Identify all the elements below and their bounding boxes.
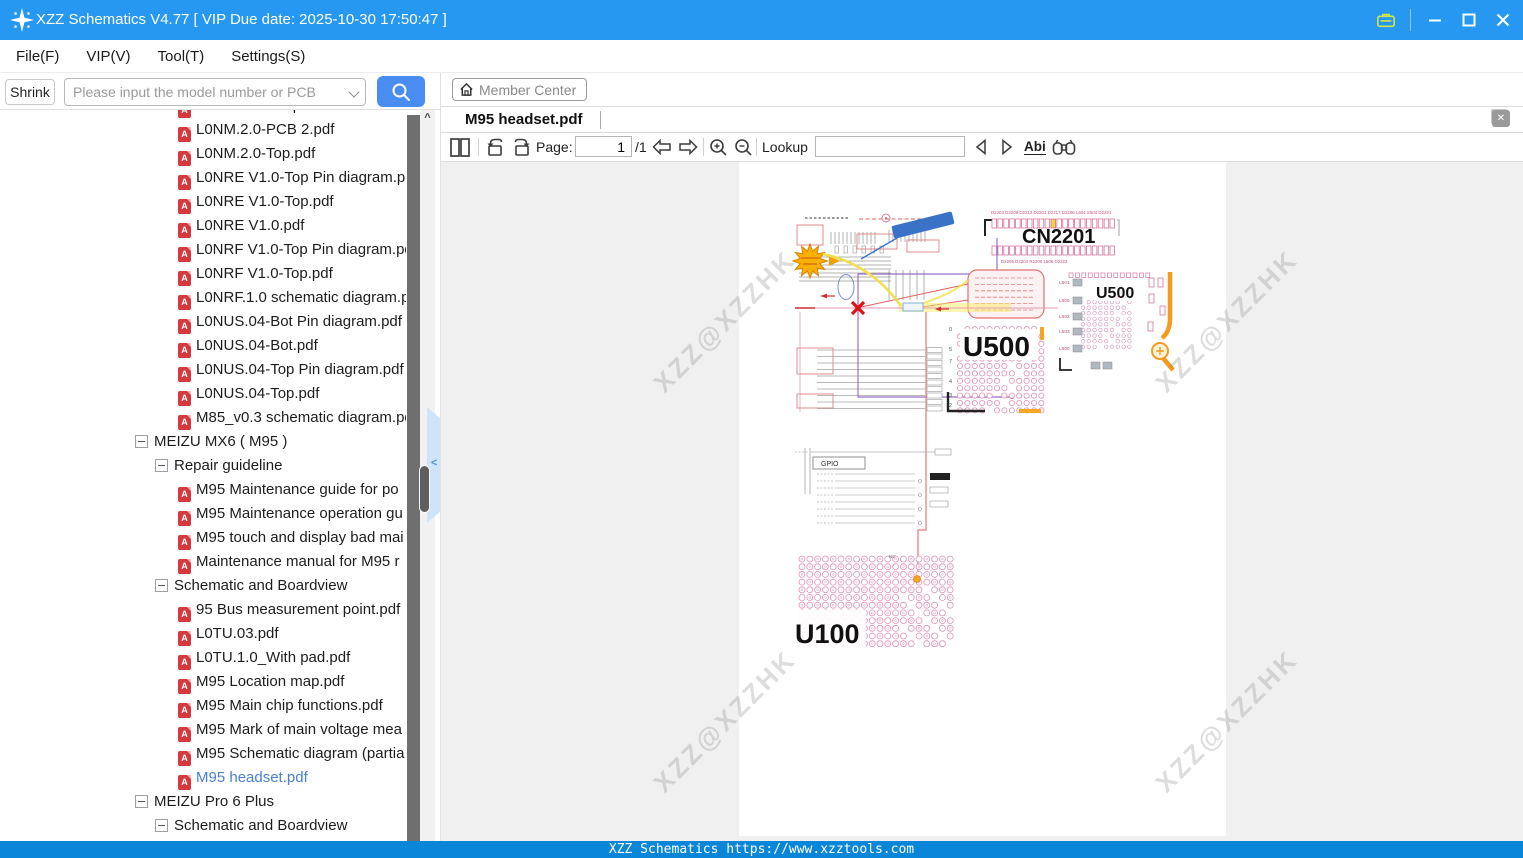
model-search-box <box>64 78 366 106</box>
document-tab[interactable]: M95 headset.pdf <box>465 111 583 128</box>
find-previous-button[interactable] <box>973 136 989 158</box>
lookup-label: Lookup <box>762 136 808 158</box>
page-label: Page: <box>536 136 573 158</box>
svg-text:2: 2 <box>949 403 952 409</box>
pdf-icon: A <box>178 679 191 694</box>
page-count-label: /1 <box>635 136 647 158</box>
menu-item-vip[interactable]: VIP(V) <box>86 48 130 65</box>
tree-item-label: L0NUS.04-Bot Pin diagram.pdf <box>196 313 402 330</box>
pdf-page: D2203 D2209 D2212 D2201 D2217 D2206 L504… <box>739 162 1226 836</box>
search-row: Shrink <box>0 73 440 110</box>
close-button[interactable] <box>1493 10 1513 30</box>
tree-item-label: L0TU.03.pdf <box>196 625 279 642</box>
tree-file[interactable]: AMaintenance manual for M95 r <box>0 550 406 574</box>
pdf-icon: A <box>178 535 191 550</box>
pdf-icon: A <box>178 295 191 310</box>
tree-file[interactable]: AL0TU.1.0_With pad.pdf <box>0 646 406 670</box>
tree-group[interactable]: Schematic and Boardview <box>0 574 406 598</box>
tree-file[interactable]: AL0NRE V1.0-Top.pdf <box>0 190 406 214</box>
schematic-drawing: D2203 D2209 D2212 D2201 D2217 D2206 L504… <box>739 162 1226 836</box>
member-center-label: Member Center <box>479 82 576 98</box>
title-bar: XZZ Schematics V4.77 [ VIP Due date: 202… <box>0 0 1523 40</box>
tree-item-label: L0NRE V1.0-Top Pin diagram.pdf <box>196 169 406 186</box>
home-icon <box>459 82 474 97</box>
tree-file[interactable]: AL0NRF V1.0-Top Pin diagram.pdf <box>0 238 406 262</box>
pdf-icon: A <box>178 751 191 766</box>
model-search-input[interactable] <box>73 80 343 104</box>
search-button[interactable] <box>377 76 425 107</box>
pdf-icon: A <box>178 511 191 526</box>
status-bar-text: XZZ Schematics https://www.xzztools.com <box>609 842 914 857</box>
match-case-button[interactable]: Abi <box>1024 136 1046 158</box>
tree-file[interactable]: AM95 Location map.pdf <box>0 670 406 694</box>
pdf-icon: A <box>178 127 191 142</box>
svg-text:D2203 D2209 D2212 D2201 D2217: D2203 D2209 D2212 D2201 D2217 D2206 L504… <box>991 210 1112 215</box>
tree-item-label: L0NM.2.0-Top.pdf <box>196 145 315 162</box>
svg-text:L500: L500 <box>1059 346 1070 352</box>
tree-item-label: M95 Main chip functions.pdf <box>196 697 383 714</box>
tree-item-label: Maintenance manual for M95 r <box>196 553 399 570</box>
svg-text:7: 7 <box>949 359 952 365</box>
rotate-right-button[interactable] <box>512 136 532 158</box>
tree-file[interactable]: AM95 Schematic diagram (partia <box>0 742 406 766</box>
pdf-icon: A <box>178 391 191 406</box>
tree-item-label: MEIZU Pro 6 Plus <box>154 793 274 810</box>
connector-cn2201: D2203 D2209 D2212 D2201 D2217 D2206 L504… <box>985 210 1119 264</box>
pdf-canvas[interactable]: D2203 D2209 D2212 D2201 D2217 D2206 L504… <box>441 162 1523 841</box>
pdf-icon: A <box>178 223 191 238</box>
binoculars-icon[interactable] <box>1052 136 1076 158</box>
app-window: XZZ Schematics V4.77 [ VIP Due date: 202… <box>0 0 1523 858</box>
page-number-input[interactable] <box>575 136 632 157</box>
tree-file[interactable]: AL0NUS.04-Top.pdf <box>0 382 406 406</box>
bga-u500: 057432 U500 <box>948 326 1044 413</box>
menu-item-file[interactable]: File(F) <box>16 48 59 65</box>
svg-text:L501: L501 <box>1059 280 1070 286</box>
svg-text:0: 0 <box>949 327 952 333</box>
find-next-button[interactable] <box>999 136 1015 158</box>
divider <box>756 138 757 156</box>
bga-u100: NC U100 <box>794 554 953 649</box>
tree-item-label: M85_v0.3 schematic diagram.pdf <box>196 409 406 426</box>
pdf-icon: A <box>178 271 191 286</box>
briefcase-icon[interactable] <box>1376 10 1396 30</box>
pdf-icon: A <box>178 110 191 118</box>
pdf-icon: A <box>178 487 191 502</box>
collapse-icon[interactable] <box>155 819 168 832</box>
minimize-button[interactable] <box>1425 10 1445 30</box>
tree-file[interactable]: AL0NM.2.0-Bot.pdf <box>0 110 406 118</box>
status-bar: XZZ Schematics https://www.xzztools.com <box>0 841 1523 858</box>
pdf-toolbar: Page: /1 Lookup Abi <box>441 133 1523 162</box>
member-row: Member Center <box>441 73 1523 107</box>
svg-text:L503: L503 <box>1059 329 1070 335</box>
pdf-icon: A <box>178 367 191 382</box>
tree-item-label: L0NUS.04-Top.pdf <box>196 385 319 402</box>
svg-text:NC: NC <box>889 554 896 559</box>
tree-file[interactable]: AL0NRE V1.0-Top Pin diagram.pdf <box>0 166 406 190</box>
tree-file[interactable]: AL0NM.2.0-PCB 2.pdf <box>0 118 406 142</box>
tree-file[interactable]: AM95 Maintenance operation gu <box>0 502 406 526</box>
tree-group[interactable]: MEIZU MX6 ( M95 ) <box>0 430 406 454</box>
tree-item-label: MEIZU MX6 ( M95 ) <box>154 433 287 450</box>
tree-item-label: L0NRF.1.0 schematic diagram.pdf <box>196 289 406 306</box>
tree-item-label: L0NM.2.0-PCB 2.pdf <box>196 121 334 138</box>
tree-group[interactable]: MEIZU Pro 6 Plus <box>0 790 406 814</box>
document-tab-bar: M95 headset.pdf ✕ <box>441 107 1523 133</box>
menu-bar: File(F) VIP(V) Tool(T) Settings(S) <box>0 40 1523 73</box>
divider <box>703 138 704 156</box>
tree-item-label: M95 Maintenance operation gu <box>196 505 403 522</box>
pdf-icon: A <box>178 247 191 262</box>
maximize-button[interactable] <box>1459 10 1479 30</box>
collapse-icon[interactable] <box>135 795 148 808</box>
tree-item-label: M95 touch and display bad mai <box>196 529 404 546</box>
two-page-view-button[interactable] <box>449 136 471 158</box>
chevron-down-icon[interactable] <box>349 87 359 97</box>
tree-file[interactable]: AM95 touch and display bad mai <box>0 526 406 550</box>
pdf-icon: A <box>178 151 191 166</box>
tree-group[interactable]: Repair guideline <box>0 454 406 478</box>
svg-text:GPIO: GPIO <box>821 461 839 468</box>
chevron-left-icon: < <box>431 457 437 469</box>
pdf-icon: A <box>178 199 191 214</box>
svg-text:4: 4 <box>949 379 952 385</box>
collapse-icon[interactable] <box>155 459 168 472</box>
member-center-button[interactable]: Member Center <box>452 78 587 101</box>
svg-text:3: 3 <box>949 393 952 399</box>
tree-file[interactable]: AL0NRF V1.0-Top.pdf <box>0 262 406 286</box>
svg-text:U500: U500 <box>1096 285 1134 302</box>
tree-file[interactable]: AL0NM.2.0-Top.pdf <box>0 142 406 166</box>
tree-item-label: 95 Bus measurement point.pdf <box>196 601 400 618</box>
tree-file[interactable]: AM85_v0.3 schematic diagram.pdf <box>0 406 406 430</box>
zoom-out-button[interactable] <box>733 136 754 158</box>
svg-text:L505: L505 <box>1059 298 1070 304</box>
zoom-in-button[interactable] <box>708 136 729 158</box>
tree-file[interactable]: AL0NUS.04-Bot Pin diagram.pdf <box>0 310 406 334</box>
collapse-icon[interactable] <box>155 579 168 592</box>
tree-item-label: L0NUS.04-Bot.pdf <box>196 337 318 354</box>
tree-file[interactable]: AM95 headset.pdf <box>0 766 406 790</box>
pdf-icon: A <box>178 175 191 190</box>
tree-item-label: M95 Location map.pdf <box>196 673 344 690</box>
divider <box>1410 9 1411 31</box>
window-title: XZZ Schematics V4.77 [ VIP Due date: 202… <box>36 11 447 28</box>
menu-item-tool[interactable]: Tool(T) <box>158 48 205 65</box>
svg-text:L502: L502 <box>1059 314 1070 320</box>
divider <box>600 111 601 129</box>
tree-file[interactable]: AL0TU.03.pdf <box>0 622 406 646</box>
pdf-icon: A <box>178 727 191 742</box>
tree-item-label: Schematic and Boardview <box>174 817 347 834</box>
file-tree: AL0NM.2.0-Bot.pdfAL0NM.2.0-PCB 2.pdfAL0N… <box>0 110 406 841</box>
tree-file[interactable]: AL0NUS.04-Top Pin diagram.pdf <box>0 358 406 382</box>
app-logo-icon <box>9 7 35 33</box>
menu-item-settings[interactable]: Settings(S) <box>231 48 305 65</box>
svg-text:CN2201: CN2201 <box>1022 226 1095 248</box>
tree-item-label: M95 headset.pdf <box>196 769 308 786</box>
svg-text:5: 5 <box>949 347 952 353</box>
search-icon <box>390 81 412 103</box>
tree-item-label: Repair guideline <box>174 457 282 474</box>
tree-item-label: L0NRF V1.0-Top.pdf <box>196 265 333 282</box>
lookup-input[interactable] <box>815 136 965 157</box>
svg-text:U500: U500 <box>963 331 1030 362</box>
tree-group[interactable]: Schematic and Boardview <box>0 814 406 838</box>
tree-file[interactable]: AL0NRE V1.0.pdf <box>0 214 406 238</box>
tree-item-label: M95 Schematic diagram (partia <box>196 745 404 762</box>
pdf-icon: A <box>178 559 191 574</box>
pdf-icon: A <box>178 343 191 358</box>
tree-item-label: M95 Maintenance guide for po <box>196 481 399 498</box>
pdf-icon: A <box>178 775 191 790</box>
scroll-up-icon[interactable]: ^ <box>421 111 434 125</box>
svg-text:U100: U100 <box>795 619 860 649</box>
board-u500: L501L505L502L503L500 U500 <box>1059 272 1173 370</box>
tree-file[interactable]: AM95 Mark of main voltage mea <box>0 718 406 742</box>
scrollbar-thumb[interactable] <box>419 465 430 513</box>
blue-flag-annotation <box>891 211 954 239</box>
collapse-icon[interactable] <box>135 435 148 448</box>
rotate-left-button[interactable] <box>485 136 505 158</box>
tree-file[interactable]: AM95 Maintenance guide for po <box>0 478 406 502</box>
gpio-block: GPIO <box>795 448 951 525</box>
tree-item-label: L0NUS.04-Top Pin diagram.pdf <box>196 361 404 378</box>
pdf-icon: A <box>178 631 191 646</box>
shrink-button[interactable]: Shrink <box>5 79 55 105</box>
pdf-icon: A <box>178 703 191 718</box>
tree-item-label: L0TU.1.0_With pad.pdf <box>196 649 350 666</box>
pdf-icon: A <box>178 415 191 430</box>
tree-item-label: M95 Mark of main voltage mea <box>196 721 402 738</box>
prev-page-button[interactable] <box>651 136 673 158</box>
pdf-icon: A <box>178 319 191 334</box>
close-tab-icon[interactable]: ✕ <box>1492 110 1510 127</box>
tree-item-label: L0NM.2.0-Bot.pdf <box>196 110 314 114</box>
svg-text:D2205 D2204 R2200 L50: D2205 D2204 R2200 L506 D2222 <box>1001 259 1068 264</box>
tree-file[interactable]: AL0NRF.1.0 schematic diagram.pdf <box>0 286 406 310</box>
tree-item-label: L0NRE V1.0.pdf <box>196 217 304 234</box>
tree-item-label: L0NRE V1.0-Top.pdf <box>196 193 334 210</box>
tree-file[interactable]: AL0NUS.04-Bot.pdf <box>0 334 406 358</box>
tree-item-label: Schematic and Boardview <box>174 577 347 594</box>
pdf-icon: A <box>178 655 191 670</box>
tree-file[interactable]: A95 Bus measurement point.pdf <box>0 598 406 622</box>
divider <box>478 138 479 156</box>
next-page-button[interactable] <box>677 136 699 158</box>
pdf-icon: A <box>178 607 191 622</box>
tree-item-label: L0NRF V1.0-Top Pin diagram.pdf <box>196 241 406 258</box>
tree-file[interactable]: AM95 Main chip functions.pdf <box>0 694 406 718</box>
